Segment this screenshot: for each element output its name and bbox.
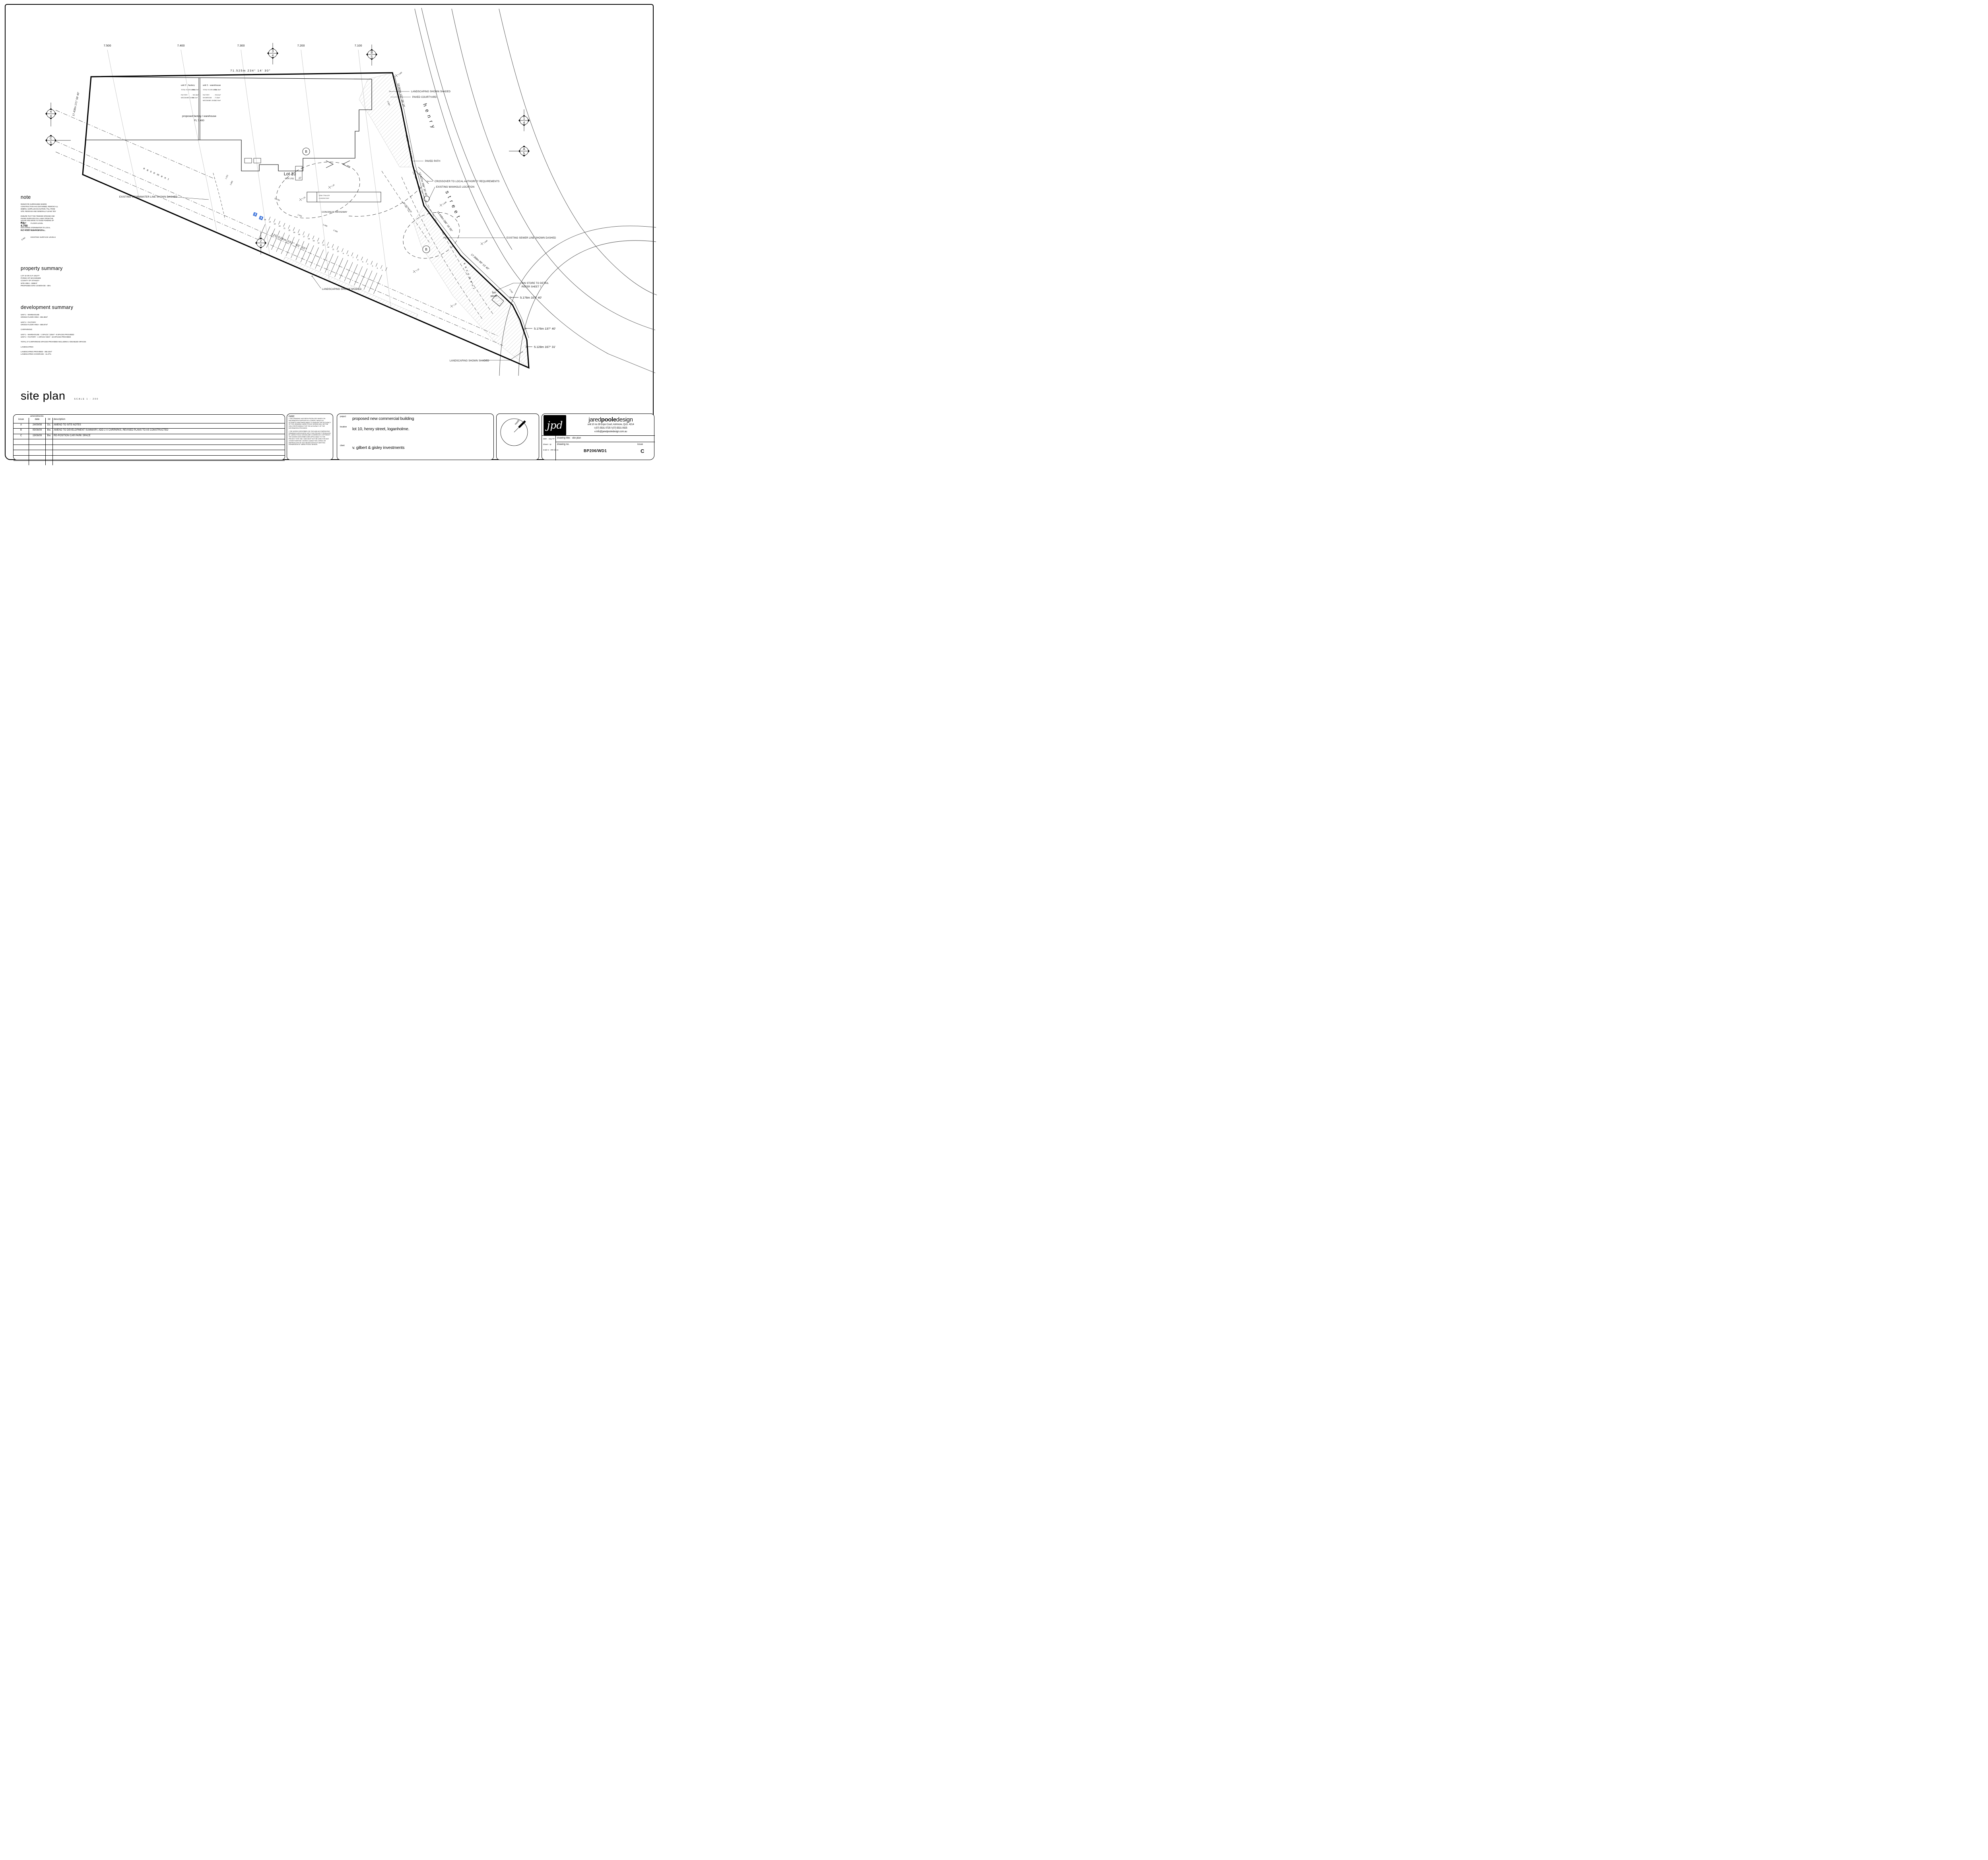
loading-bay-label-1: SEMI TRAILER xyxy=(319,195,330,196)
spot-level: 7.19 xyxy=(453,303,457,307)
contour-label: 7.300 xyxy=(237,44,245,47)
building-label: proposed factory / warehouse xyxy=(182,115,216,118)
contour-label: 7.400 xyxy=(177,44,185,47)
small-dim: 2.900 xyxy=(229,181,233,186)
firm-name-design: design xyxy=(616,416,633,423)
concrete-driveway-label: CONCRETE DRIVEWAY xyxy=(322,211,348,214)
parking-number-tick xyxy=(288,225,290,229)
section-marker: C 5 xyxy=(45,135,56,146)
unit2-row-value: - 86.01m² xyxy=(192,97,198,99)
disclaimer-bullet: THE WORKS DESCRIBED ON THIS AND ACCOMPAN… xyxy=(289,431,331,446)
marker-bottom: 4 xyxy=(50,115,52,118)
small-dim: 1.010 xyxy=(297,214,303,217)
jpd-logo: jpd xyxy=(544,415,566,435)
drawing-scale-text: SCALE 1 : 200 xyxy=(74,398,99,400)
unit1-row-value: - 703.61m² xyxy=(214,94,221,96)
setback-label: 8m SETBACK xyxy=(402,202,412,214)
parking-number-tick xyxy=(332,244,334,248)
amendments-cell: Ds. xyxy=(46,423,53,429)
easement-label-left: easement xyxy=(143,167,171,182)
issue-label: issue xyxy=(637,443,643,446)
unit2-row-label: FACTORY xyxy=(181,94,188,96)
amendments-cell xyxy=(29,460,46,465)
parking-number-tick xyxy=(381,265,382,269)
marker-bottom: 4 xyxy=(523,121,525,125)
loading-bay-label-2: LOADING BAY xyxy=(319,198,330,199)
parking-number-tick xyxy=(303,231,305,235)
building-outline xyxy=(85,77,372,180)
unit2-row-value: - 780.18m² xyxy=(192,94,199,96)
amendments-cell xyxy=(29,455,46,461)
spot-level: 7.040 xyxy=(483,239,488,244)
lot-sub: GTP 1701 xyxy=(285,178,294,180)
parking-space-number: 20 xyxy=(288,229,290,231)
small-dim: 2.400 xyxy=(333,229,338,233)
project-value: proposed new commercial building xyxy=(352,416,414,421)
dim-top: 71.525m 234° 14' 30" xyxy=(230,69,271,72)
firm-divider-h1 xyxy=(542,435,655,436)
parking-number-tick xyxy=(371,261,373,264)
unit1-row-label: FACTORY xyxy=(203,94,210,96)
small-dim: 22.700 xyxy=(274,197,280,201)
location-label: location xyxy=(340,426,347,428)
amendments-cell: 05/08/09 xyxy=(29,428,46,434)
callout-manhole: EXISTING MANHOLE LOCATION xyxy=(436,186,474,188)
callout-landscaping-mid: LANDSCAPING SHOWN SHADED xyxy=(322,288,362,291)
parking-space-number: 23 xyxy=(274,223,276,225)
drawing-title-label: drawing title: xyxy=(557,437,571,439)
development-summary-heading: development summary xyxy=(21,305,116,310)
legend-rl-value: R.L. 4.500 xyxy=(21,229,31,232)
parking-space-number: 18 xyxy=(298,233,300,235)
callout-paved-path: PAVED PATH xyxy=(425,160,440,163)
parking-space-number: 6 xyxy=(357,259,359,261)
lot-labels: Lot 10 GTP 1701 27 xyxy=(284,172,302,180)
parking-space-number: 16 xyxy=(308,238,310,240)
firm-email: e info@jaredpooledesign.com.au xyxy=(568,431,653,433)
project-block: project proposed new commercial building… xyxy=(337,414,494,460)
contour-label: 7.500 xyxy=(104,44,111,47)
date-value: aug '07 xyxy=(549,438,555,440)
amendments-cell: Bw. xyxy=(46,434,53,439)
amendments-rows: A24/09/08Ds.AMEND TO SITE NOTESB05/08/09… xyxy=(14,423,285,466)
property-summary-panel: property summary LOT 10 ON S.P. 191277PA… xyxy=(21,266,108,287)
callout-stormwater: EXISTING STORMWATER LINE SHOWN DASHED xyxy=(119,196,177,198)
firm-name: jaredpooledesign xyxy=(568,416,653,423)
unit1-row-label: SHOWROOM xyxy=(203,97,212,99)
unit1-row-value: - 112.94m² xyxy=(214,100,221,101)
amendments-col-int: int xyxy=(46,418,53,423)
marker-top: C xyxy=(50,137,52,140)
drawing-title-value: site plan xyxy=(572,437,581,439)
bubble-label: B xyxy=(305,150,307,153)
parking-number-tick xyxy=(313,236,314,239)
marker-bottom: 5 xyxy=(523,152,525,155)
disclaimer-bullets: THIS DRAWING HAS BEEN PRODUCED BASED ON … xyxy=(289,418,331,446)
unit2-row-value: - 866.87m² xyxy=(192,89,199,91)
marker-top: 3 xyxy=(272,50,274,53)
callout-sewer: EXISTING SEWER LINE SHOWN DASHED xyxy=(507,237,556,239)
marker-top: B xyxy=(371,51,373,54)
development-summary-panel: development summary UNIT 1 - WAREHOUSEGR… xyxy=(21,305,116,355)
callout-bin-detail-2: REFER SHEET 7 xyxy=(522,286,542,288)
amendments-cell xyxy=(14,455,29,461)
parking-space-number: 5 xyxy=(362,261,363,263)
parking-space-number: 24 xyxy=(269,221,271,223)
firm-phone: t (07) 5531 0725 f (07) 5531 0925 xyxy=(568,427,653,429)
site-plan-sheet: 7.500 7.400 7.300 7.200 7.100 xyxy=(0,0,658,465)
amendments-cell: 19/08/09 xyxy=(29,434,46,439)
contour-label: 7.100 xyxy=(355,44,362,47)
parking-space-number: 13 xyxy=(322,244,324,246)
callout-leaders xyxy=(167,91,522,360)
small-dim: 2.439 xyxy=(509,289,513,294)
project-label: project xyxy=(340,415,346,418)
scale-label: scale: xyxy=(543,449,548,451)
parking-space-number: 12 xyxy=(327,246,329,248)
amendments-col-issue: issue xyxy=(14,418,29,423)
drawing-no-value: BP206/WD1 xyxy=(584,449,607,453)
disabled-parking-icon: ♿ xyxy=(258,215,264,220)
dim-end-2: 5.176m 137° 40' xyxy=(534,327,556,330)
amendments-cell xyxy=(14,460,29,465)
disclaimer-bullet: THIS DRAWING HAS BEEN PRODUCED BASED ON … xyxy=(289,418,331,429)
street-name-street: street xyxy=(444,190,462,221)
amendments-cell xyxy=(53,439,285,445)
amendments-cell xyxy=(14,439,29,445)
legend-fl-value: F.L. 4.750 xyxy=(21,222,31,227)
lot-title: Lot 10 xyxy=(284,172,296,177)
parking-number-tick xyxy=(356,254,358,258)
parking-space-number: 4 xyxy=(367,263,368,265)
parking-space-number: 2 xyxy=(377,267,378,269)
bin-store-label-2: store xyxy=(490,295,497,298)
callout-crossover: CROSSOVER TO LOCAL AUTHORITY REQUIREMENT… xyxy=(435,181,499,183)
spot-level: 7.31 xyxy=(302,196,306,200)
dim-bottom: 125.538m 262° 00' 30" xyxy=(271,232,307,251)
amendments-cell: Bw. xyxy=(46,428,53,434)
amendments-cell: B xyxy=(14,428,29,434)
marker-top: 4 xyxy=(50,110,52,114)
landscaping-hatch xyxy=(283,73,529,368)
issue-value: C xyxy=(641,448,644,454)
firm-block: jpd jaredpooledesign unit 10 no 28 Expo … xyxy=(542,414,654,460)
amendments-cell xyxy=(29,445,46,450)
spot-level: 7.15 xyxy=(415,268,419,272)
parking-number-tick xyxy=(317,238,319,241)
section-marker: B 5 xyxy=(366,49,377,60)
property-summary-lines: LOT 10 ON S.P. 191277PARISH OF MACKENZIE… xyxy=(21,275,108,287)
drawing-title-text: site plan xyxy=(21,390,66,403)
parking-number-tick xyxy=(322,240,324,243)
firm-divider-h2 xyxy=(555,442,655,442)
parking-space-number: 17 xyxy=(303,235,305,237)
unit1-row-value: - 894.38m² xyxy=(214,89,221,91)
callout-landscaping-top: LANDSCAPING SHOWN SHADED xyxy=(411,91,451,93)
parking-number-tick xyxy=(293,227,295,231)
property-summary-heading: property summary xyxy=(21,266,108,271)
property-line: PROPOSED SITE COVERAGE - 46% xyxy=(21,285,108,287)
dim-left: 17.428m 171° 59' 40" xyxy=(72,91,80,116)
notes-heading: note xyxy=(21,194,80,200)
drawn-value: Jp xyxy=(549,443,551,445)
amendments-cell: 24/09/08 xyxy=(29,423,46,429)
legend-rl-label: SURFACE LEVEL xyxy=(31,229,45,231)
drawing-no-label: drawing no. xyxy=(557,443,569,446)
amendments-cell xyxy=(29,450,46,455)
amendments-cell xyxy=(46,455,53,461)
north-needle-icon xyxy=(519,421,525,427)
date-label: date: xyxy=(543,438,547,440)
amendments-cell: AMEND TO SITE NOTES xyxy=(53,423,285,429)
north-compass: north xyxy=(497,414,538,459)
marker-bottom: 4 xyxy=(272,54,274,58)
parking-space-number: 11 xyxy=(332,248,334,250)
amendments-cell xyxy=(53,450,285,455)
section-marker: A 5 xyxy=(518,146,530,157)
parking-bays: 2524232221201918171615141312111098765432… xyxy=(257,217,387,294)
building-level: FL 7.400 xyxy=(194,119,204,122)
amendments-cell xyxy=(46,445,53,450)
contour-labels: 7.500 7.400 7.300 7.200 7.100 xyxy=(104,44,362,47)
firm-name-jared: jared xyxy=(588,416,601,423)
drawn-label: drawn: xyxy=(543,443,549,445)
marker-bottom: 5 xyxy=(371,55,373,59)
marker-top: A xyxy=(523,148,525,151)
amendments-cell: RE-POSITION CAR PARK SPACE xyxy=(53,434,285,439)
amendments-cell: A xyxy=(14,423,29,429)
parking-space-number: 15 xyxy=(313,240,315,242)
parking-number-tick xyxy=(278,221,280,225)
spot-level: 7.16 xyxy=(331,184,335,188)
amendments-block: amendments issue date int description A2… xyxy=(13,414,285,460)
amendments-cell xyxy=(46,460,53,465)
amendments-cell: AMEND TO DEVELOPMENT SUMMARY, ADD 2 X CA… xyxy=(53,428,285,434)
drawing-title-panel: site plan SCALE 1 : 200 xyxy=(21,390,99,403)
firm-address: unit 10 no 28 Expo Court, Ashmore, QLD. … xyxy=(568,423,653,426)
amendments-col-date: date xyxy=(29,418,46,423)
marker-top: 1 xyxy=(523,117,525,120)
disclaimer-block: note: THIS DRAWING HAS BEEN PRODUCED BAS… xyxy=(287,414,333,460)
callout-paved-courtyard: PAVED COURTYARD xyxy=(412,96,437,99)
unit2-title: unit 2 - factory xyxy=(181,84,195,87)
parking-number-tick xyxy=(298,229,299,233)
amendments-cell: C xyxy=(14,434,29,439)
site-boundary xyxy=(83,73,529,368)
scale-value: 1 : 200 @ a1 xyxy=(548,449,558,451)
parking-number-tick xyxy=(269,217,270,220)
development-summary-lines: UNIT 1 - WAREHOUSEGROSS FLOOR AREA - 894… xyxy=(21,314,116,355)
dim-end-3: 5.128m 167° 31' xyxy=(534,345,556,349)
parking-space-number: 22 xyxy=(279,225,281,227)
parking-number-tick xyxy=(342,249,343,252)
section-marker: 3 4 xyxy=(267,48,278,59)
marker-bottom: 5 xyxy=(50,141,52,145)
amendments-cell xyxy=(53,460,285,465)
client-label: client xyxy=(340,445,345,447)
amendments-cell xyxy=(29,439,46,445)
parking-space-number: 8 xyxy=(348,254,349,256)
parking-space-number: 25 xyxy=(264,219,266,221)
unit1-title: unit 1 - warehouse xyxy=(203,84,221,87)
bubble-label: B xyxy=(425,248,427,251)
contour-label: 7.200 xyxy=(297,44,305,47)
amendments-cell xyxy=(46,450,53,455)
loading-bay-box xyxy=(307,192,381,202)
section-marker: 4 4 xyxy=(45,108,56,119)
amendments-col-description: description xyxy=(53,418,285,423)
amendments-cell xyxy=(14,450,29,455)
parking-number-tick xyxy=(361,257,363,260)
parking-space-number: 19 xyxy=(293,231,295,233)
space-27: 27 xyxy=(299,177,301,180)
parking-space-number: 3 xyxy=(372,265,373,267)
parking-number-tick xyxy=(376,263,377,267)
small-dim: 2.400 xyxy=(323,223,328,227)
spot-level: 7.045 xyxy=(442,201,447,205)
amendments-cell xyxy=(46,439,53,445)
parking-number-tick xyxy=(347,250,348,254)
parking-space-number: 21 xyxy=(283,227,285,229)
bin-store-label-1: bin xyxy=(492,291,496,294)
marker-bottom: 4 xyxy=(260,244,262,247)
firm-name-poole: poole xyxy=(601,416,616,423)
client-value: v. gilbert & gisley investments xyxy=(352,445,404,450)
amendments-table: issue date int description xyxy=(14,418,285,423)
parking-number-tick xyxy=(327,242,329,246)
street-name-henry: henry xyxy=(422,103,437,132)
parking-space-number: 14 xyxy=(318,242,320,244)
small-dim: 1.315 xyxy=(225,175,229,180)
dim-end-1: 5.176m 107° 40' xyxy=(520,296,542,299)
contour-lines xyxy=(107,50,391,307)
legend-panel: F.L. 4.750 FLOOR LEVEL R.L. 4.500 SURFAC… xyxy=(21,222,88,241)
parking-number-tick xyxy=(274,219,275,222)
stormwater-line xyxy=(213,173,225,219)
unit-schedules: unit 2 - factory TOTAL FLOOR AREA - 866.… xyxy=(181,84,221,122)
parking-number-tick xyxy=(283,223,285,227)
drawing-title-row: drawing title: site plan xyxy=(557,437,581,439)
disabled-parking-icon: ♿ xyxy=(252,212,258,217)
unit1-row-value: - 77.83m² xyxy=(214,97,220,99)
marker-top: 2 xyxy=(260,239,262,243)
parking-number-tick xyxy=(337,246,338,250)
section-marker: 1 4 xyxy=(518,115,530,126)
north-label: north xyxy=(514,419,520,425)
legend-esl-value: 8.650 xyxy=(21,233,30,241)
amendments-cell xyxy=(14,445,29,450)
amendments-title: amendments xyxy=(14,415,285,418)
parking-number-tick xyxy=(308,233,309,237)
parking-space-number: 1 xyxy=(382,269,383,271)
amendments-cell xyxy=(53,455,285,461)
legend-esl-label: EXISTING SURFACE LEVELS xyxy=(31,236,56,238)
parking-space-number: 9 xyxy=(343,252,344,254)
spot-level: 7.040 xyxy=(398,71,402,76)
parking-space-number: 7 xyxy=(353,256,354,258)
north-block: north xyxy=(496,414,539,460)
firm-divider-v xyxy=(555,435,556,460)
parking-number-tick xyxy=(366,259,368,262)
callout-bin-detail-1: BIN STORE TO DETAIL xyxy=(522,282,549,285)
note-paragraph: REINSTATE SURROUNDS WHERE CONSTRUCTION H… xyxy=(21,203,59,213)
parking-space-number: 10 xyxy=(337,250,339,252)
location-value: lot 10, henry street, loganholme. xyxy=(352,427,409,431)
legend-fl-label: FLOOR LEVEL xyxy=(31,222,43,224)
parking-number-tick xyxy=(351,252,353,256)
amendments-cell xyxy=(53,445,285,450)
development-line: LANDSCAPING COVERAGE - 11.27% xyxy=(21,353,116,355)
callout-landscaping-bottom: LANDSCAPING SHOWN SHADED xyxy=(450,360,489,362)
